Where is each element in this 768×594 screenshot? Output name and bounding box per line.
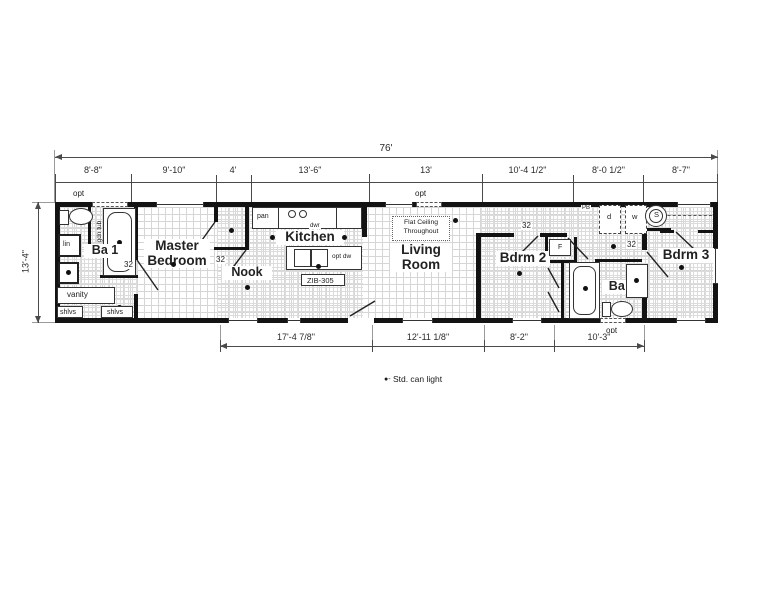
dim-tick bbox=[484, 340, 485, 352]
vanity-label: vanity bbox=[66, 291, 89, 299]
legend-separator: - bbox=[388, 376, 390, 383]
room-label-ba1: Ba 1 bbox=[84, 244, 126, 258]
toilet bbox=[69, 208, 93, 225]
legend: ●- Std. can light bbox=[384, 374, 442, 384]
door-size-label: 32 bbox=[626, 241, 637, 249]
shelves-label: shlvs bbox=[106, 309, 124, 316]
room-label-bdrm2: Bdrm 2 bbox=[496, 251, 550, 266]
dryer-label: d bbox=[606, 213, 612, 221]
room-label-master: Master Bedroom bbox=[144, 239, 210, 268]
dim-bottom-segment: 12'-11 1/8" bbox=[383, 333, 473, 342]
legend-text: Std. can light bbox=[393, 374, 442, 384]
water-heater-label: S bbox=[653, 211, 660, 219]
door-size-label: 32 bbox=[215, 256, 226, 264]
pantry-label: pan bbox=[256, 213, 270, 220]
can-light-dot bbox=[342, 235, 347, 240]
door-size-label: 32 bbox=[123, 261, 134, 269]
toilet-tank bbox=[602, 302, 611, 317]
room-label-nook: Nook bbox=[222, 266, 272, 280]
furnace-label: F bbox=[557, 244, 563, 251]
can-light-dot bbox=[171, 262, 176, 267]
opt-garden-tub-label: opt gdn tub bbox=[97, 206, 104, 268]
dim-tick bbox=[372, 340, 373, 352]
can-light-dot bbox=[245, 285, 250, 290]
door-swings bbox=[0, 0, 768, 594]
can-light-dot bbox=[517, 271, 522, 276]
plumbing-box-label: PB bbox=[581, 205, 591, 211]
refrigerator bbox=[336, 207, 362, 229]
shelves-label: shlvs bbox=[59, 309, 77, 316]
linen-label: lin bbox=[62, 241, 71, 248]
door-size-label: 32 bbox=[521, 222, 532, 230]
dim-tick bbox=[644, 340, 645, 352]
room-label-kitchen: Kitchen bbox=[276, 230, 344, 245]
can-light-dot bbox=[66, 270, 71, 275]
can-light-dot bbox=[229, 228, 234, 233]
washer-label: w bbox=[631, 213, 638, 221]
toilet-tank bbox=[59, 210, 69, 225]
can-light-dot bbox=[270, 235, 275, 240]
dim-bottom-segment: 10'-3" bbox=[569, 333, 629, 342]
flat-ceiling-note: Flat Ceiling Throughout bbox=[392, 216, 450, 241]
dim-tick bbox=[554, 340, 555, 352]
arrow-right-icon bbox=[637, 343, 644, 349]
dim-bottom-segment: 8'-2" bbox=[489, 333, 549, 342]
dim-bottom-segment: 17'-4 7/8" bbox=[251, 333, 341, 342]
island-model-label: ZIB-305 bbox=[306, 277, 335, 285]
can-light-dot bbox=[679, 265, 684, 270]
room-label-bdrm3: Bdrm 3 bbox=[658, 248, 714, 263]
toilet bbox=[611, 301, 633, 317]
can-light-dot bbox=[453, 218, 458, 223]
can-light-dot bbox=[316, 264, 321, 269]
can-light-dot bbox=[634, 278, 639, 283]
can-light-dot bbox=[583, 286, 588, 291]
opt-dishwasher-label: opt dw bbox=[331, 254, 352, 261]
room-label-living: Living Room bbox=[390, 243, 452, 272]
sink-basin bbox=[294, 249, 311, 267]
arrow-left-icon bbox=[220, 343, 227, 349]
range-burner-icon bbox=[299, 210, 307, 218]
can-light-dot bbox=[611, 244, 616, 249]
dim-line-bottom bbox=[220, 346, 644, 347]
range-burner-icon bbox=[288, 210, 296, 218]
floorplan-page: 76' 8'-8" 9'-10" 4' 13'-6" 13' 10'-4 1/2… bbox=[0, 0, 768, 594]
